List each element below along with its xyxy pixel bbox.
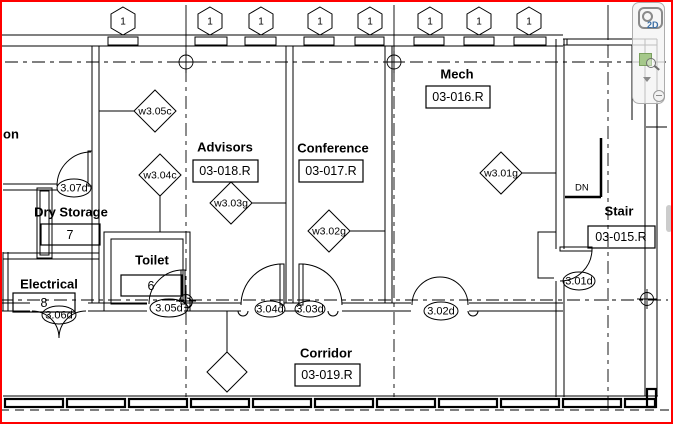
room-number-mech: 03-016.R <box>432 90 483 104</box>
room-name-corridor: Corridor <box>300 346 352 361</box>
grid-bubble-label: 1 <box>427 17 433 28</box>
room-name-conference: Conference <box>297 141 369 156</box>
door-tag: 3.04d <box>255 301 285 317</box>
room-name-electrical: Electrical <box>20 277 78 292</box>
door-arc-3-03d <box>301 264 342 305</box>
stair-dn-label: DN <box>575 183 589 194</box>
room-number-advisors: 03-018.R <box>199 164 250 178</box>
door-tag-label: 3.01d <box>565 276 593 288</box>
wall-tag: w3.02g <box>308 210 350 252</box>
grid-bubble-label: 1 <box>207 17 213 28</box>
navigation-bar[interactable]: 2D <box>632 2 665 104</box>
grid-bubble-label: 1 <box>258 17 264 28</box>
room-name-dry-storage: Dry Storage <box>34 205 108 220</box>
door-tag-label: 3.06d <box>45 310 73 322</box>
grid-bubble: 1 <box>517 7 541 35</box>
room-number-electrical: 8 <box>41 296 48 310</box>
room-name-mech: Mech <box>440 67 473 82</box>
window <box>414 37 444 45</box>
room-name-advisors: Advisors <box>197 140 253 155</box>
door-arc-3-02d-right <box>440 277 468 305</box>
window <box>355 37 384 45</box>
wall-tag: w3.04c <box>139 154 181 196</box>
wall-tag-label: w3.05c <box>137 106 171 118</box>
wall-tag: w3.03g <box>210 182 252 224</box>
curtain-wall-south <box>0 389 672 410</box>
door-tag-label: 3.02d <box>427 306 455 318</box>
grid-bubble-label: 1 <box>476 17 482 28</box>
door-tag-label: 3.04d <box>256 304 284 316</box>
window <box>195 37 227 45</box>
door-tags: 3.07d 3.06d 3.05d 3.04d 3.03d 3.02d 3.01… <box>42 179 595 324</box>
grid-bubbles: 1 1 1 1 1 1 1 1 <box>111 7 541 35</box>
grid-bubble: 1 <box>198 7 222 35</box>
wall-tag-label: w3.01g <box>483 168 518 180</box>
door-leaf-3-03d <box>299 264 303 305</box>
door-tag-label: 3.05d <box>155 303 183 315</box>
room-number-stair: 03-015.R <box>595 230 646 244</box>
door-tag: 3.02d <box>424 302 458 320</box>
collapse-navbar-button[interactable] <box>653 90 665 102</box>
wall-toilet-outer <box>104 232 190 311</box>
door-tag: 3.05d <box>150 299 188 317</box>
door-leaf-3-07d <box>88 151 92 186</box>
door-tag: 3.01d <box>563 272 595 290</box>
floorplan-viewport[interactable]: 1 1 1 1 1 1 1 1 <box>0 0 673 424</box>
room-number-toilet: 6 <box>148 279 155 293</box>
opening-stair <box>554 249 566 281</box>
grid-bubble-label: 1 <box>317 17 323 28</box>
door-stop <box>468 311 478 316</box>
room-name-partial: on <box>3 127 19 142</box>
zoom-tool-button[interactable] <box>638 51 660 73</box>
door-arc-3-04d <box>241 264 282 305</box>
room-name-toilet: Toilet <box>135 253 169 268</box>
wall-tag: w3.01g <box>480 152 522 194</box>
room-number-dry-storage: 7 <box>67 228 74 242</box>
mech-shaft <box>538 232 556 278</box>
grid-bubble-label: 1 <box>526 17 532 28</box>
grid-bubble: 1 <box>111 7 135 35</box>
center-mark <box>175 51 197 73</box>
grid-bubble-label: 1 <box>367 17 373 28</box>
dry-storage-shelving <box>37 188 52 258</box>
room-number-conference: 03-017.R <box>305 164 356 178</box>
vertical-scrollbar-thumb[interactable] <box>666 205 672 232</box>
window <box>514 37 546 45</box>
wall-tag-label: w3.02g <box>311 226 346 238</box>
door-arc-3-07d <box>57 152 91 186</box>
door-tag: 3.07d <box>57 179 91 197</box>
door-leaf-3-04d <box>280 264 284 305</box>
empty-tag-diamond <box>207 352 247 392</box>
door-tag-label: 3.03d <box>296 304 324 316</box>
revit-floorplan-view[interactable]: 1 1 1 1 1 1 1 1 <box>0 0 673 424</box>
door-tag: 3.03d <box>295 301 325 317</box>
wall-tag-label: w3.04c <box>142 170 176 182</box>
wall-tag: w3.05c <box>134 90 176 132</box>
window <box>245 37 276 45</box>
door-arc-3-02d-left <box>412 277 440 305</box>
window <box>108 37 138 45</box>
grid-bubble-label: 1 <box>120 17 126 28</box>
center-mark <box>637 289 657 309</box>
wall-tag-label: w3.03g <box>213 198 248 210</box>
wheel-mode-label: 2D <box>647 20 659 30</box>
grid-bubble: 1 <box>249 7 273 35</box>
magnifier-handle <box>654 65 660 70</box>
grid-bubble: 1 <box>358 7 382 35</box>
window <box>304 37 334 45</box>
grid-bubble: 1 <box>418 7 442 35</box>
windows <box>108 37 546 45</box>
room-number-corridor: 03-019.R <box>301 368 352 382</box>
center-marks <box>175 51 657 311</box>
window <box>464 37 494 45</box>
door-tag-label: 3.07d <box>60 183 88 195</box>
grid-bubble: 1 <box>467 7 491 35</box>
room-name-stair: Stair <box>605 204 634 219</box>
zoom-options-caret-icon[interactable] <box>643 77 651 82</box>
center-mark <box>383 51 405 73</box>
grid-bubble: 1 <box>308 7 332 35</box>
